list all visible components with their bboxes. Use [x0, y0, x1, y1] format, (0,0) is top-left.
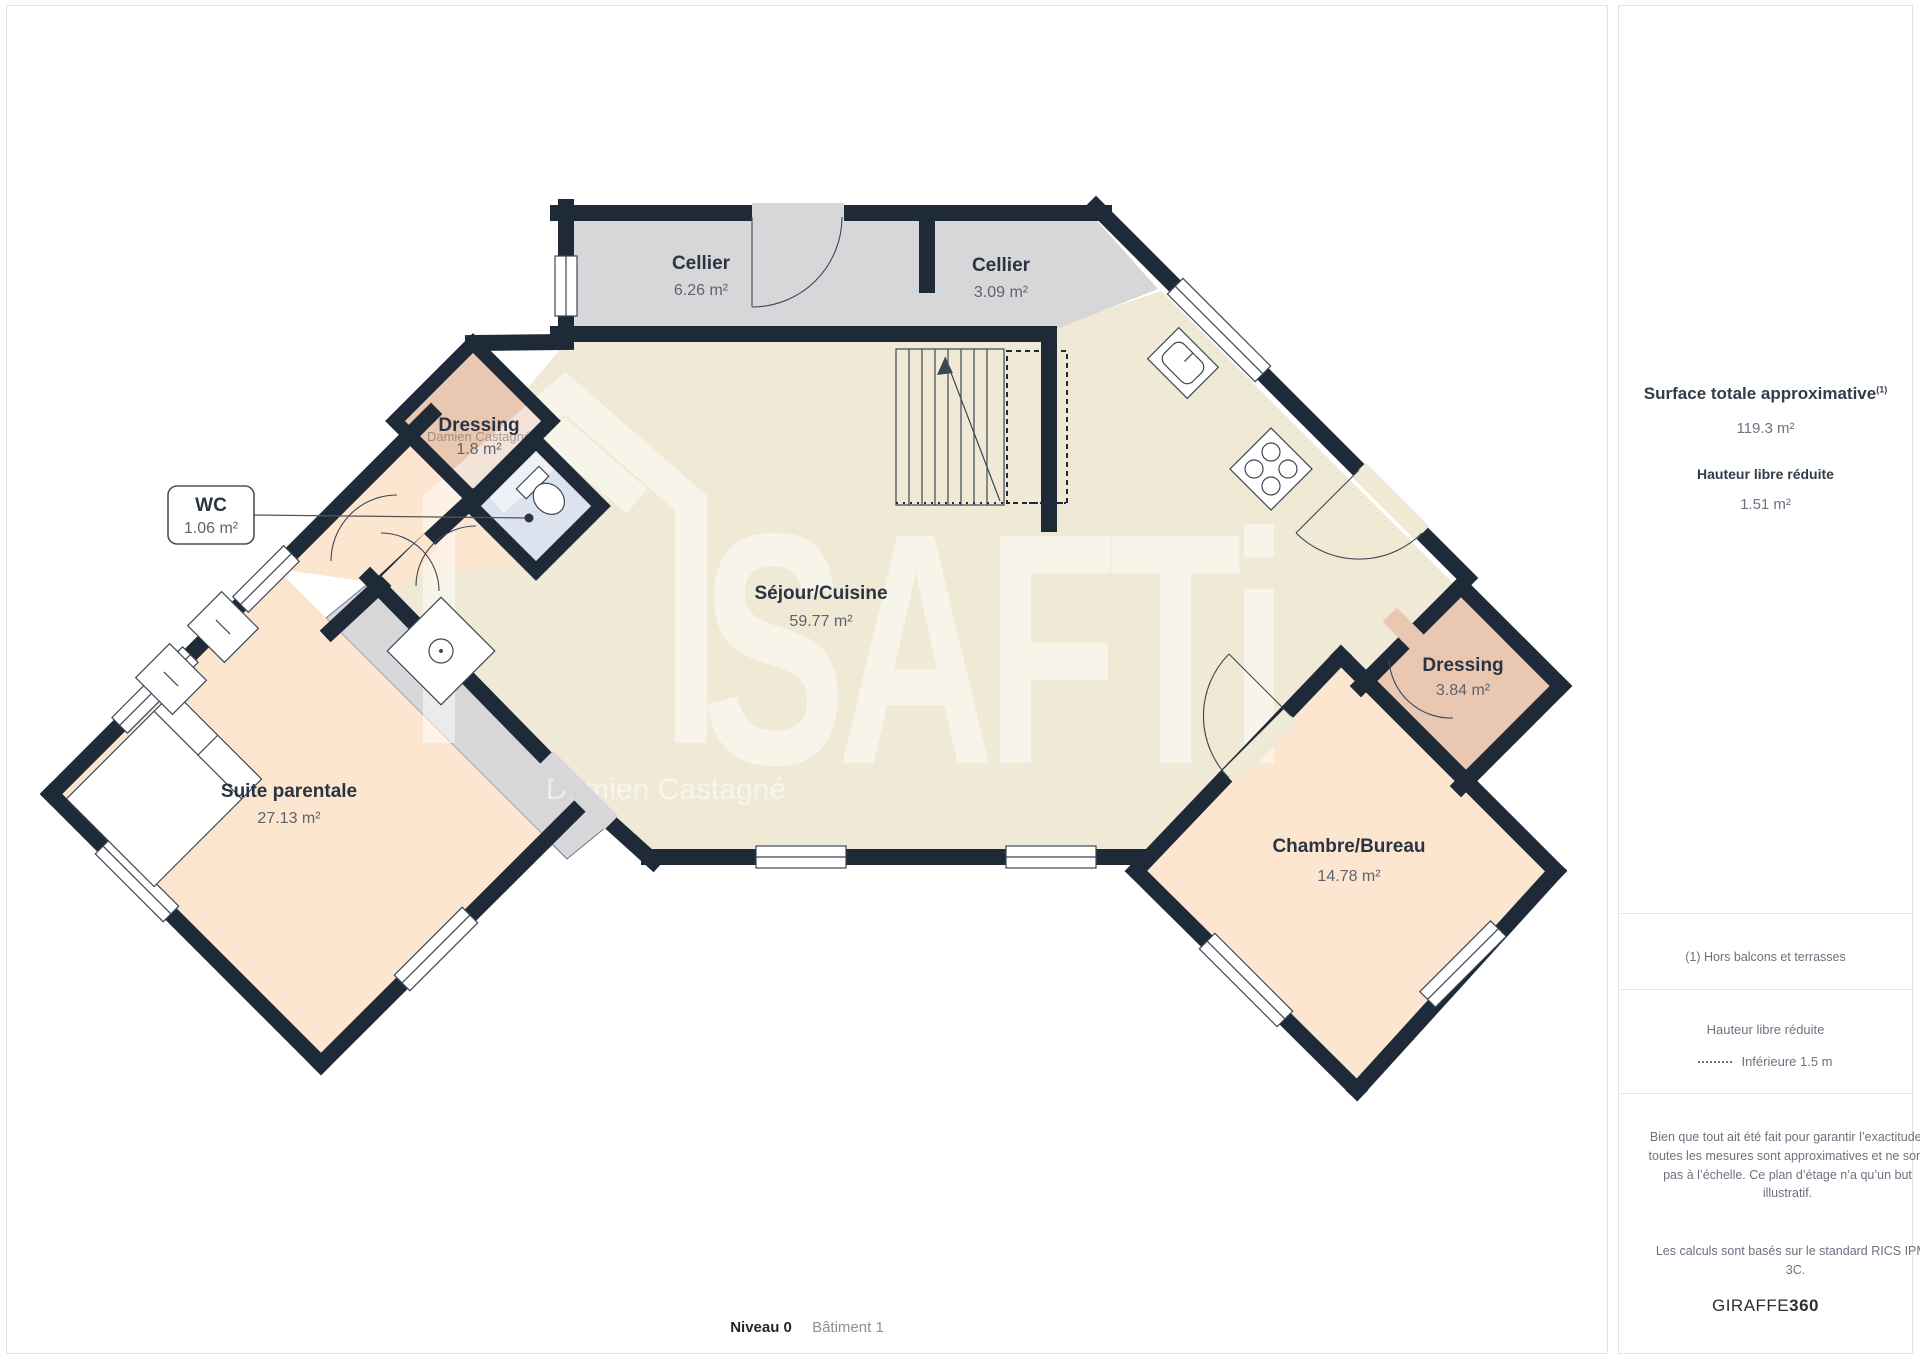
- room-area-dressing2: 3.84 m²: [1436, 682, 1491, 699]
- sidebar-divider: [1619, 989, 1912, 990]
- window: [1006, 846, 1096, 868]
- room-label-dressing2: Dressing: [1422, 655, 1503, 676]
- room-label-suite: Suite parentale: [221, 781, 357, 802]
- room-area-dressing1: 1.8 m²: [456, 441, 502, 458]
- total-surface-note-ref: (1): [1876, 384, 1887, 394]
- room-area-cellier1: 6.26 m²: [674, 282, 729, 299]
- room-area-sejour: 59.77 m²: [789, 613, 853, 630]
- room-label-cellier2: Cellier: [972, 255, 1031, 276]
- giraffe360-logo-text: GIRAFFE: [1712, 1296, 1789, 1315]
- sidebar-divider: [1619, 1093, 1912, 1094]
- sidebar-divider: [1619, 913, 1912, 914]
- reduced-height-title: Hauteur libre réduite: [1619, 466, 1912, 482]
- giraffe360-logo-suffix: 360: [1789, 1296, 1819, 1315]
- level-label: Niveau 0: [730, 1319, 792, 1336]
- cellier1-floor: [566, 213, 927, 334]
- room-label-cellier1: Cellier: [672, 253, 731, 274]
- room-area-wc: 1.06 m²: [184, 520, 239, 537]
- room-area-suite: 27.13 m²: [257, 810, 321, 827]
- safti-watermark-text: SAFTi: [701, 466, 1280, 834]
- info-sidebar: Surface totale approximative(1) 119.3 m²…: [1618, 5, 1913, 1354]
- reduced-height-value: 1.51 m²: [1619, 496, 1912, 513]
- legend-item: Inférieure 1.5 m: [1619, 1054, 1912, 1069]
- floorplan-panel: SAFTi Damien Castagné Damien Castagné: [6, 5, 1608, 1354]
- plan-caption: Niveau 0 Bâtiment 1: [7, 1319, 1607, 1336]
- room-area-chambre: 14.78 m²: [1317, 868, 1381, 885]
- window: [756, 846, 846, 868]
- legend-item-text: Inférieure 1.5 m: [1741, 1054, 1832, 1069]
- room-area-cellier2: 3.09 m²: [974, 284, 1029, 301]
- building-label: Bâtiment 1: [812, 1319, 884, 1336]
- balcony-note: (1) Hors balcons et terrasses: [1619, 950, 1912, 964]
- room-label-wc: WC: [195, 495, 227, 516]
- total-surface-title: Surface totale approximative(1): [1619, 384, 1912, 404]
- standard-text: Les calculs sont basés sur le standard R…: [1619, 1242, 1920, 1280]
- floorplan-drawing: SAFTi Damien Castagné Damien Castagné: [7, 6, 1607, 1353]
- dotted-line-glyph: [1698, 1061, 1732, 1063]
- disclaimer-text: Bien que tout ait été fait pour garantir…: [1619, 1128, 1920, 1203]
- legend-title: Hauteur libre réduite: [1619, 1022, 1912, 1037]
- room-label-chambre: Chambre/Bureau: [1272, 836, 1425, 857]
- floorplan-page: SAFTi Damien Castagné Damien Castagné: [0, 0, 1920, 1358]
- room-label-dressing1: Dressing: [438, 415, 519, 436]
- room-label-sejour: Séjour/Cuisine: [754, 583, 887, 604]
- giraffe360-logo: GIRAFFE360: [1619, 1296, 1912, 1316]
- total-surface-value: 119.3 m²: [1619, 420, 1912, 437]
- door-gap-cellier: [752, 203, 844, 223]
- window: [555, 256, 577, 316]
- total-surface-title-text: Surface totale approximative: [1644, 384, 1876, 403]
